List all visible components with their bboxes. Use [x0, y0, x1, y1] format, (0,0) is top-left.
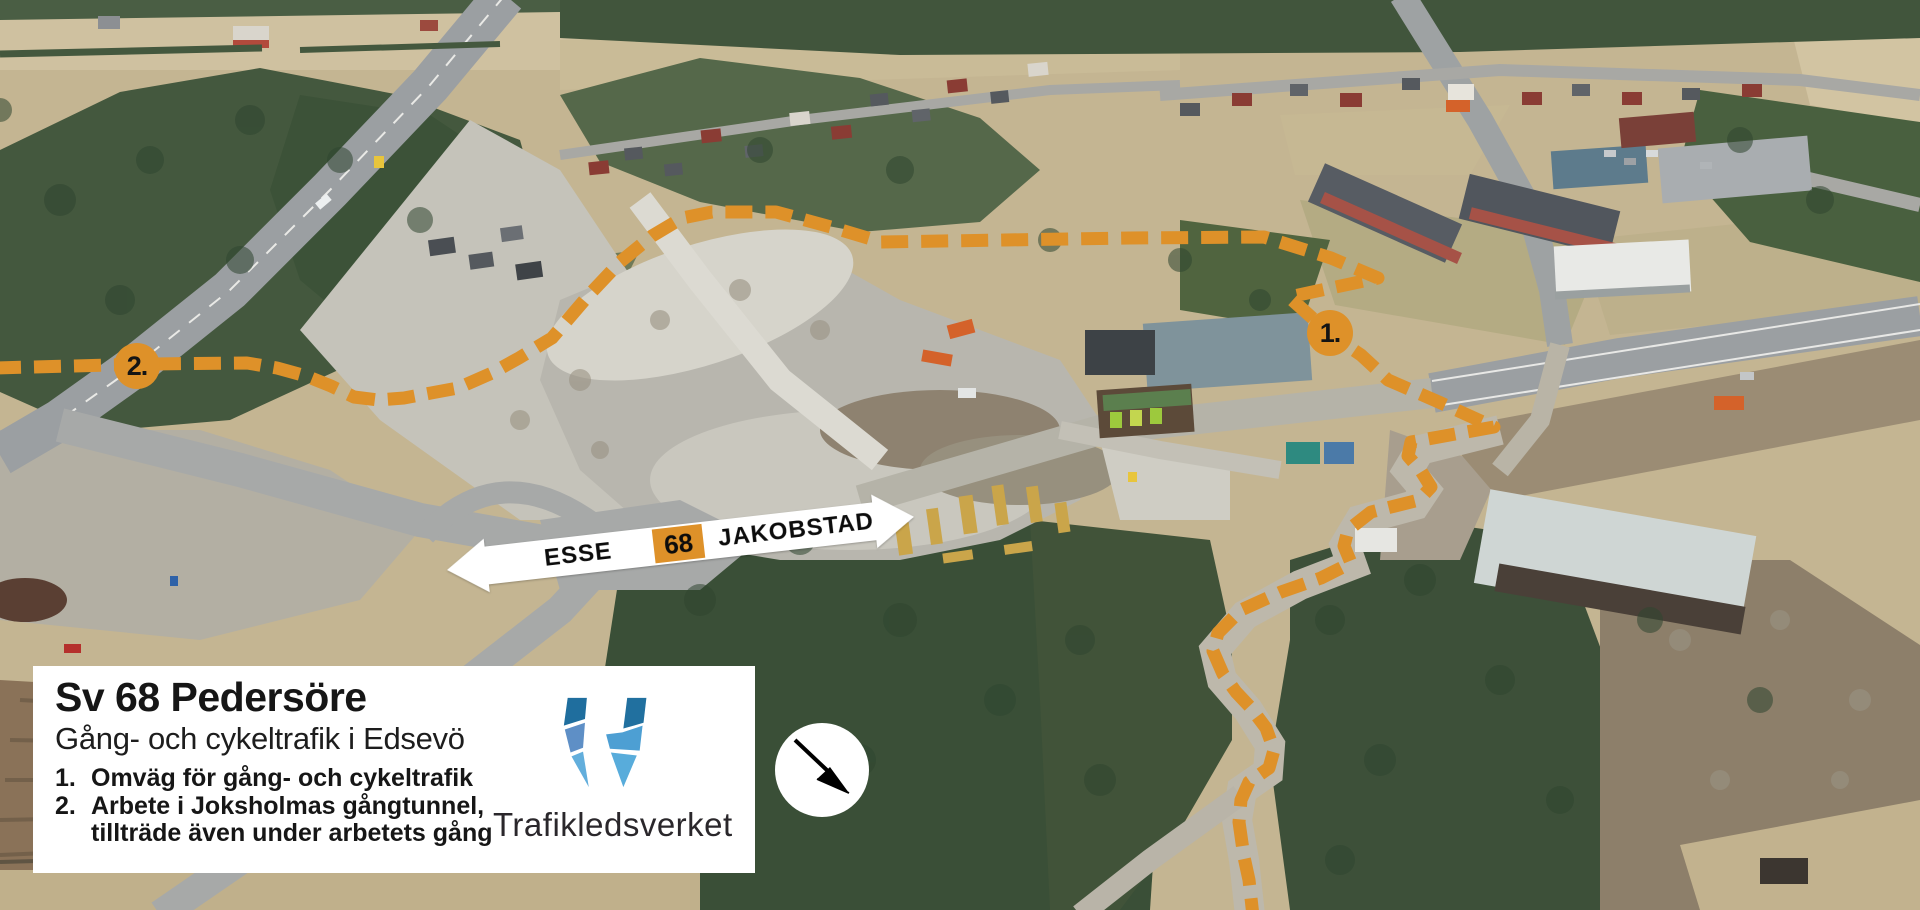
route-marker-2-label: 2. [127, 351, 148, 382]
route-marker-1-label: 1. [1320, 318, 1341, 349]
route-68-shield: 68 [652, 524, 706, 563]
destination-esse: ESSE [543, 537, 614, 573]
legend-item-2-text: Arbete i Joksholmas gångtunnel, tillträd… [91, 793, 493, 848]
agency-logo-block: Trafikledsverket [493, 694, 723, 844]
legend-list: 1. Omväg för gång- och cykeltrafik 2. Ar… [55, 765, 493, 848]
legend-item-1-number: 1. [55, 765, 91, 793]
legend-item-2: 2. Arbete i Joksholmas gångtunnel, tillt… [55, 793, 493, 848]
route-marker-1: 1. [1307, 310, 1353, 356]
north-arrow-icon [775, 723, 869, 817]
agency-name: Trafikledsverket [493, 806, 723, 844]
page-title: Sv 68 Pedersöre [55, 676, 493, 719]
left-arrowhead-icon [444, 539, 490, 597]
legend-item-2-number: 2. [55, 793, 91, 848]
legend-item-1: 1. Omväg för gång- och cykeltrafik [55, 765, 493, 793]
right-arrowhead-icon [871, 490, 917, 548]
destination-jakobstad: JAKOBSTAD [717, 507, 876, 553]
route-marker-2: 2. [114, 343, 160, 389]
trafikledsverket-w-logo [548, 694, 668, 790]
info-box: Sv 68 Pedersöre Gång- och cykeltrafik i … [33, 666, 755, 873]
page-subtitle: Gång- och cykeltrafik i Edsevö [55, 722, 493, 756]
aerial-detour-infographic: 1. 2. ESSE 68 JAKOBSTAD Sv 68 Pedersöre … [0, 0, 1920, 910]
legend-item-1-text: Omväg för gång- och cykeltrafik [91, 765, 473, 793]
